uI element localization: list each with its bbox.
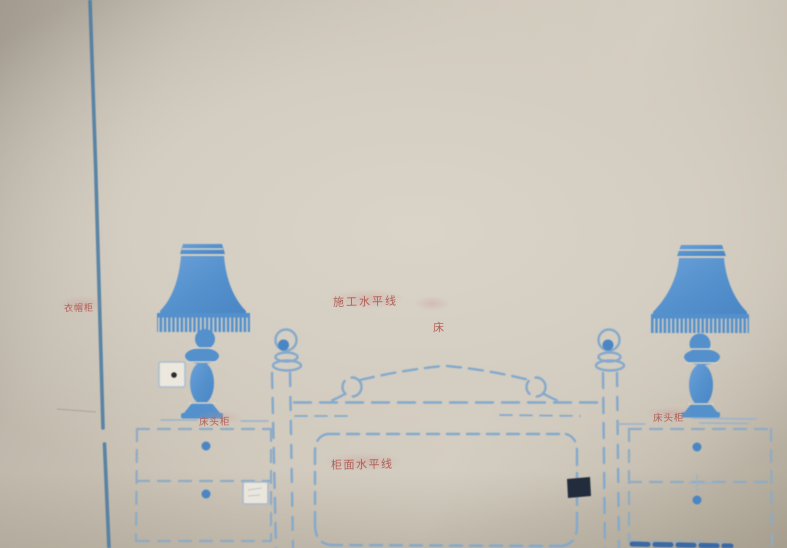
- right-nightstand: [618, 418, 772, 546]
- drawer-handle-dot: [693, 496, 702, 505]
- right-table-lamp: [651, 245, 749, 418]
- left-nightstand: [136, 420, 271, 541]
- bed-label: 床: [433, 319, 444, 335]
- wall-photo: 衣帽柜 施工水平线 床 柜面水平线 床头柜 床头柜: [0, 0, 787, 548]
- arch-scroll-right: [527, 378, 546, 397]
- nightstand-label-left: 床头柜: [199, 414, 231, 429]
- bottom-dark-dashes: [632, 544, 731, 546]
- lamp-body: [689, 364, 713, 406]
- cross-mark: [689, 475, 716, 491]
- paint-smudge: [414, 296, 450, 311]
- wardrobe-label: 衣帽柜: [64, 301, 94, 315]
- lampshade: [160, 256, 246, 314]
- lamp-knob: [195, 329, 215, 349]
- nightstand-label-right: 床头柜: [653, 410, 685, 425]
- lamp-body: [190, 362, 214, 404]
- post-finial-dot: [278, 340, 289, 351]
- bed-headboard: [272, 330, 624, 548]
- headboard-post-left: [272, 330, 301, 548]
- headboard-inner-panel: [315, 434, 577, 546]
- lampshade-fringe: [651, 317, 749, 333]
- wardrobe-line: [90, 0, 109, 548]
- drawer-handle-dot: [202, 490, 211, 499]
- label-underline: [618, 418, 756, 424]
- socket-box: [243, 482, 268, 504]
- dark-junction-box: [567, 477, 591, 498]
- drawer-handle-dot: [202, 442, 211, 451]
- construction-level-line-label: 施工水平线: [333, 292, 398, 309]
- post-finial-dot: [603, 340, 614, 351]
- left-table-lamp: [157, 244, 250, 419]
- drawer-handle-dot: [693, 443, 702, 452]
- lampshade: [653, 258, 747, 315]
- headboard-post-right: [596, 330, 624, 548]
- cabinet-surface-level-line-label: 柜面水平线: [331, 455, 394, 472]
- headboard-rail-segment: [500, 415, 580, 416]
- switch-box-dot: [171, 372, 177, 378]
- headboard-arch: [328, 366, 561, 402]
- wall-scratch: [57, 409, 96, 412]
